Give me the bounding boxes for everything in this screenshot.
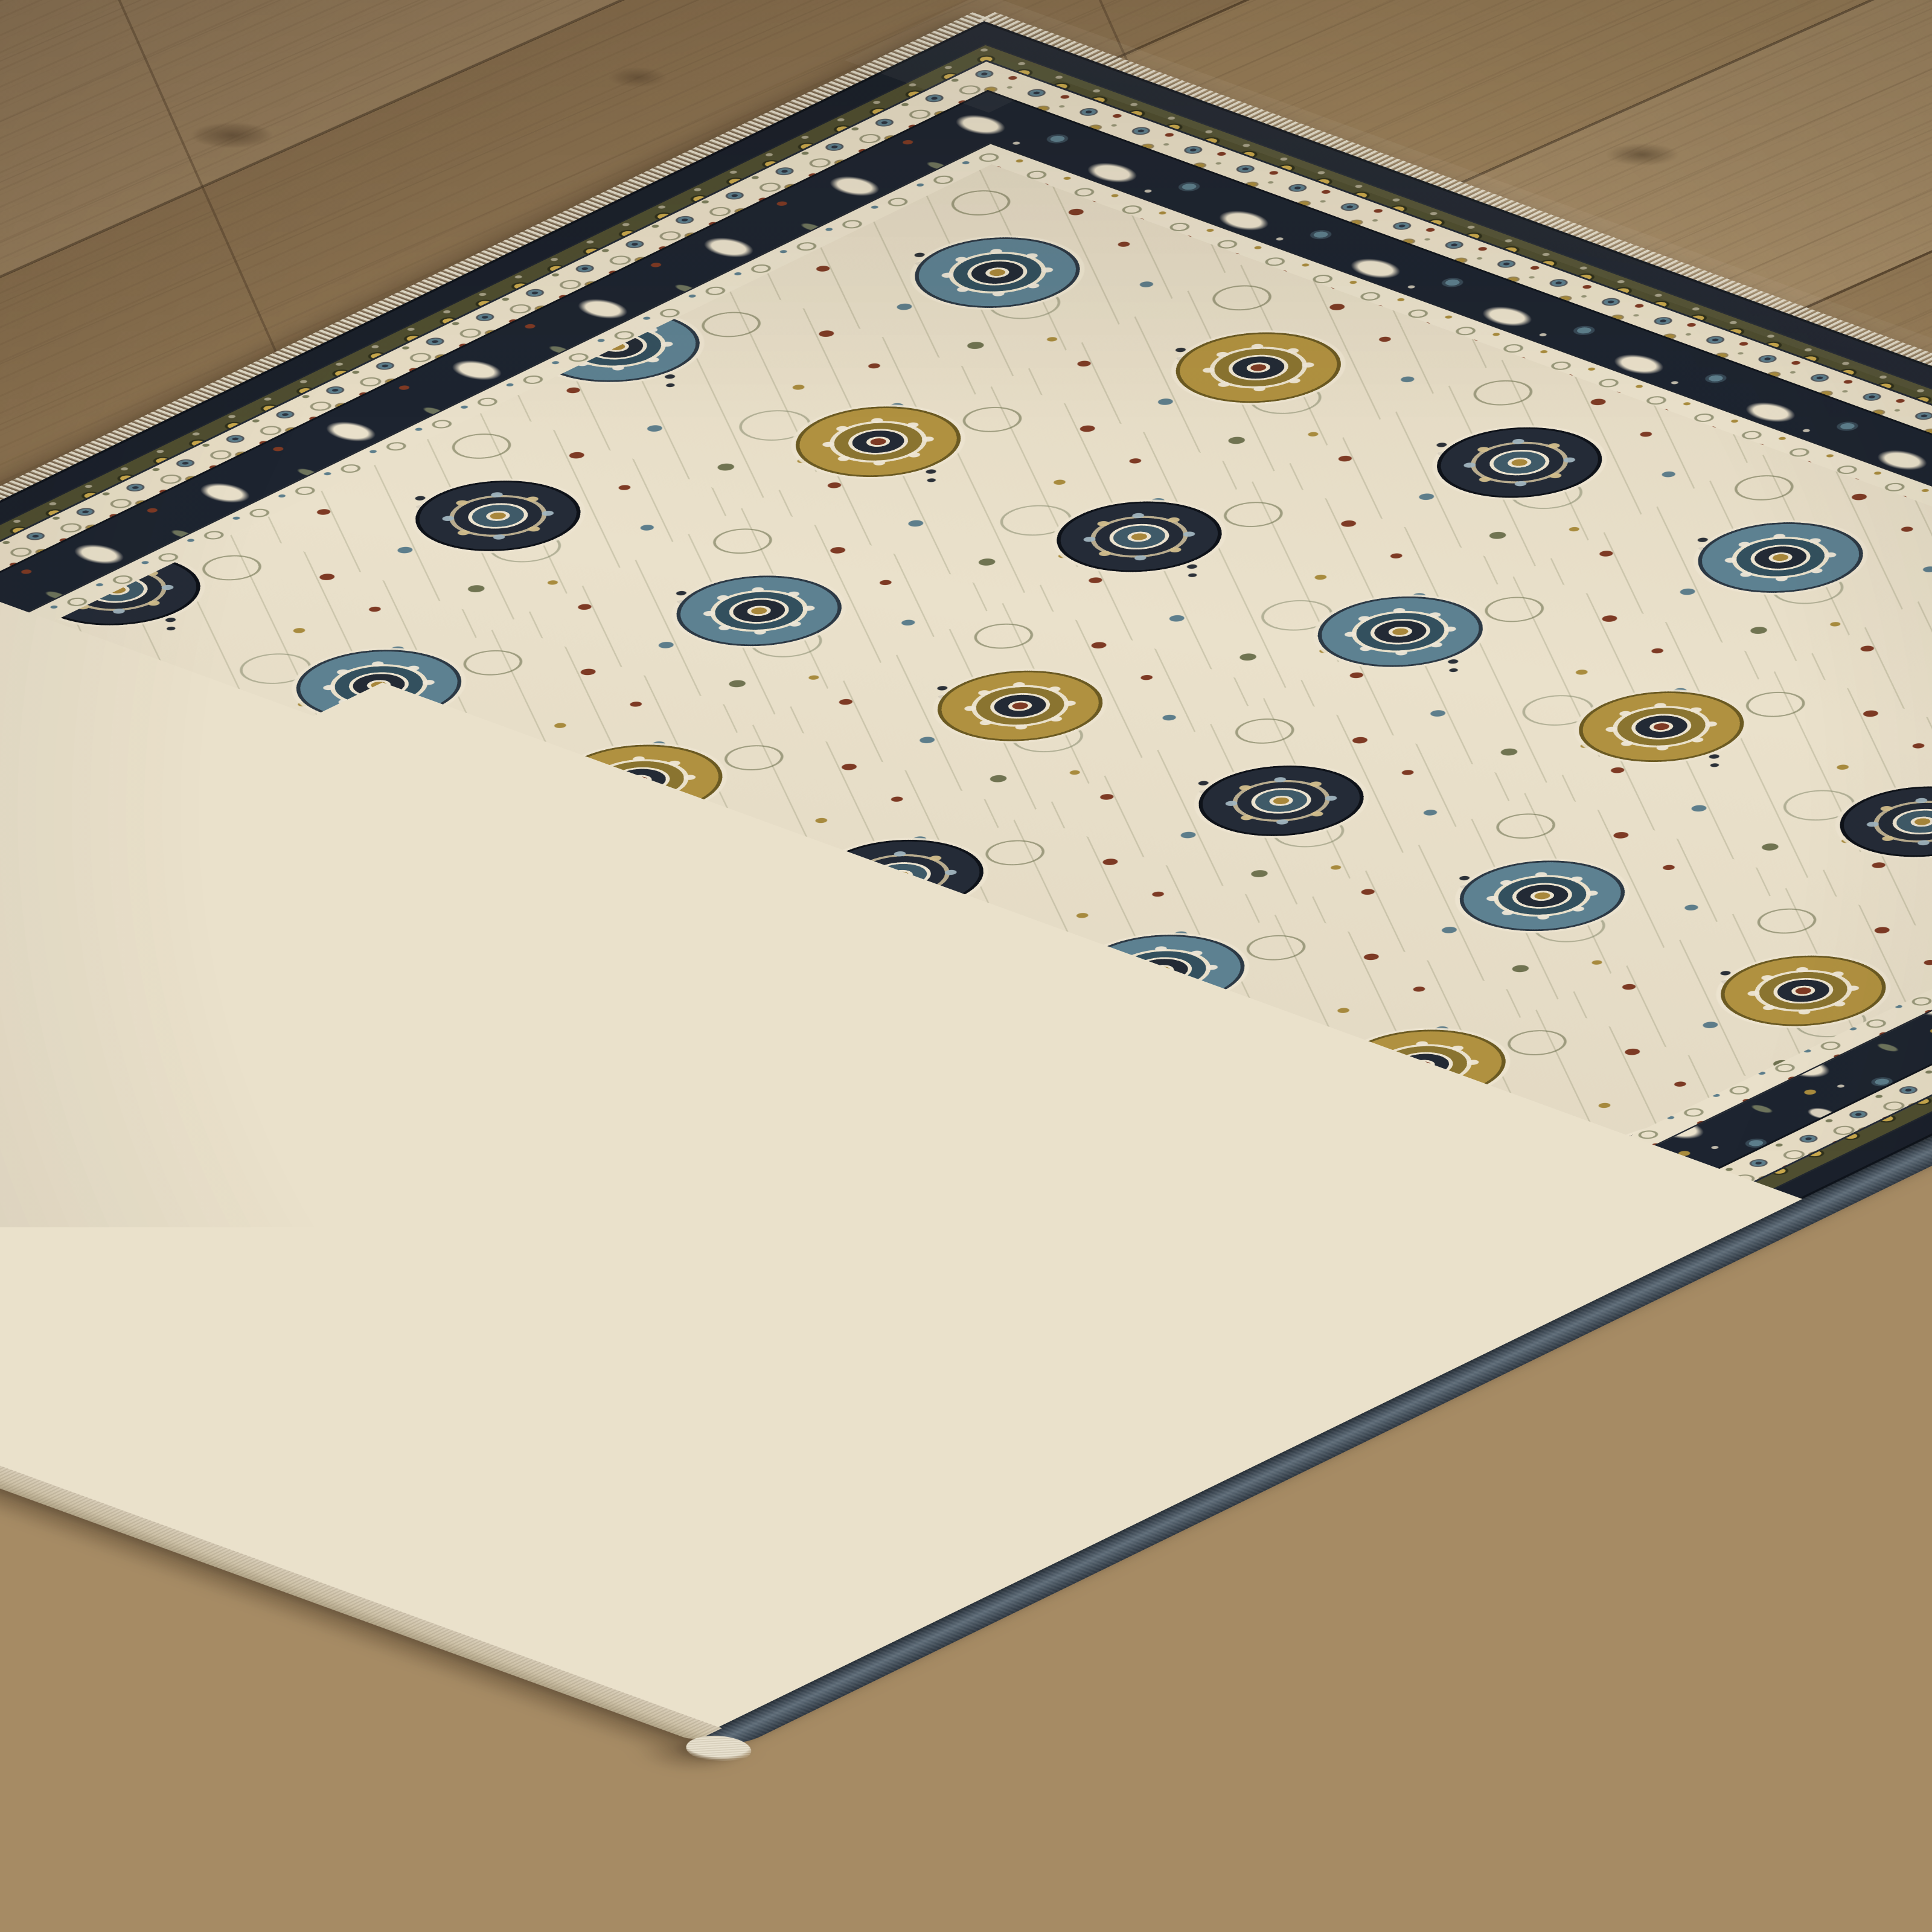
rug-medallion-gold [1296,1011,1551,1119]
rug-medallion-gold [892,651,1148,760]
rug-medallion-blue [796,1254,1052,1362]
rug-medallion-blue [1415,842,1670,950]
rug-medallion-navy [0,874,7,982]
rug-medallion-navy [0,536,246,644]
rug-medallion-gold [654,990,909,1098]
rug-medallion-navy [677,1423,932,1531]
rug-medallion-blue [1176,1180,1431,1288]
rug-medallion-blue [1273,578,1528,686]
rug-medallion-blue [1653,504,1908,612]
rug-medallion-navy [132,800,388,908]
rug-medallion-blue [155,1233,410,1342]
rug-medallion-gold [1131,313,1386,421]
rug-medallion-navy [915,1085,1171,1193]
rug-medallion-gold [750,388,1006,496]
rug-medallion-gold [0,705,126,813]
rug-medallion-navy [0,1138,149,1246]
rug-medallion-gold [1534,673,1789,781]
rug-medallion-navy [773,821,1029,929]
rug-medallion-blue [490,293,745,401]
rug-medallion-blue [632,557,887,665]
rug-medallion-navy [1795,767,1932,875]
rug-medallion-gold [274,1064,529,1172]
rug-medallion-blue [1034,916,1290,1024]
rug-medallion-gold [512,726,767,834]
rug-medallion-gold [1914,598,1932,706]
rug-medallion-gold [1057,1349,1313,1457]
rug-medallion-navy [1011,482,1267,590]
rug-medallion-blue [251,631,507,739]
rug-medallion-blue [869,219,1125,327]
rug-medallion-navy [535,1159,790,1267]
rug-medallion-navy [1392,408,1647,516]
rug-medallion-blue [393,895,648,1003]
rug-medallion-gold [1675,936,1931,1044]
rug-medallion-navy [1154,747,1409,855]
rug-medallion-navy [1556,1106,1812,1214]
rug-medallion-gold [416,1328,671,1436]
rug-medallion-navy [370,462,625,570]
rug-medallion-blue [13,969,268,1077]
